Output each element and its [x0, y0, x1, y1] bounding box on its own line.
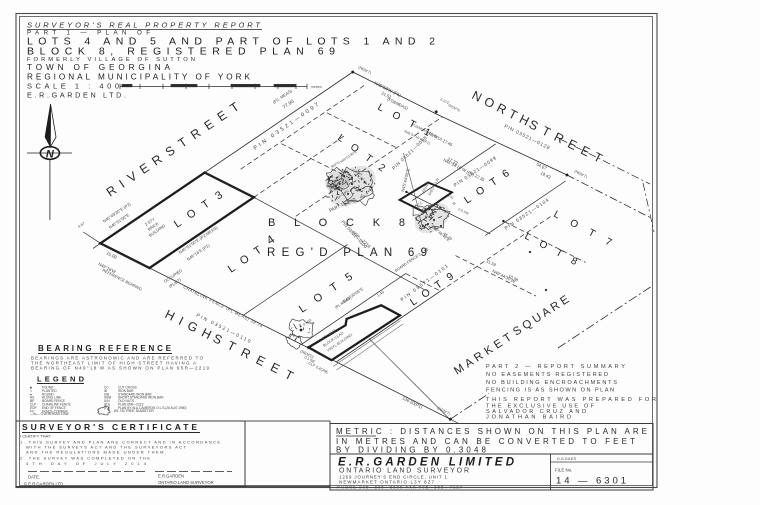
svg-text:NO EASEMENTS REGISTERED: NO EASEMENTS REGISTERED — [486, 372, 608, 378]
svg-text:NO BUILDING ENCROACHMENTS: NO BUILDING ENCROACHMENTS — [486, 380, 617, 386]
svg-text:I CERTIFY THAT:: I CERTIFY THAT: — [20, 434, 51, 439]
svg-text:metres: metres — [311, 85, 322, 89]
svg-text:AND THE REGULATIONS MADE U: AND THE REGULATIONS MADE UNDER THEM. — [26, 450, 166, 455]
svg-text:E.R.GARDEN: E.R.GARDEN — [158, 474, 184, 479]
svg-text:FILE No.: FILE No. — [555, 468, 572, 473]
svg-text:TOWN OF GEORGINA: TOWN OF GEORGINA — [27, 63, 171, 72]
svg-text:Ø1.7M TREE DIAMETER: Ø1.7M TREE DIAMETER — [114, 409, 154, 413]
svg-text:© E.R.GARDEN LTD.: © E.R.GARDEN LTD. — [24, 482, 64, 487]
svg-text:2. THE SURVEY WAS COMPLETE: 2. THE SURVEY WAS COMPLETED ON THE — [20, 456, 150, 461]
svg-text:ONTARIO LAND SURVEYOR: ONTARIO LAND SURVEYOR — [339, 468, 469, 475]
svg-text:N: N — [46, 149, 55, 161]
svg-text:ONTARIO LAND SURVEYOR: ONTARIO LAND SURVEYOR — [158, 480, 214, 485]
svg-text:E.R.GARDEN LTD.: E.R.GARDEN LTD. — [27, 91, 126, 100]
svg-text:REGIONAL MUNICIPALITY OF YO: REGIONAL MUNICIPALITY OF YORK — [27, 73, 251, 82]
svg-text:14 — 6301: 14 — 6301 — [556, 476, 626, 487]
svg-text:DATE.: DATE. — [28, 475, 40, 480]
svg-text:—w— OVERHEAD LINE: —w— OVERHEAD LINE — [30, 412, 70, 416]
svg-text:D.G.GILES: D.G.GILES — [557, 457, 576, 461]
svg-text:BEARING OF N49°18'W AS SHO: BEARING OF N49°18'W AS SHOWN ON PLAN 65R… — [31, 366, 210, 371]
svg-text:BEARING REFERENCE: BEARING REFERENCE — [38, 344, 172, 353]
svg-text:FENCING IS AS SHOWN ON PL: FENCING IS AS SHOWN ON PLAN — [486, 388, 614, 394]
